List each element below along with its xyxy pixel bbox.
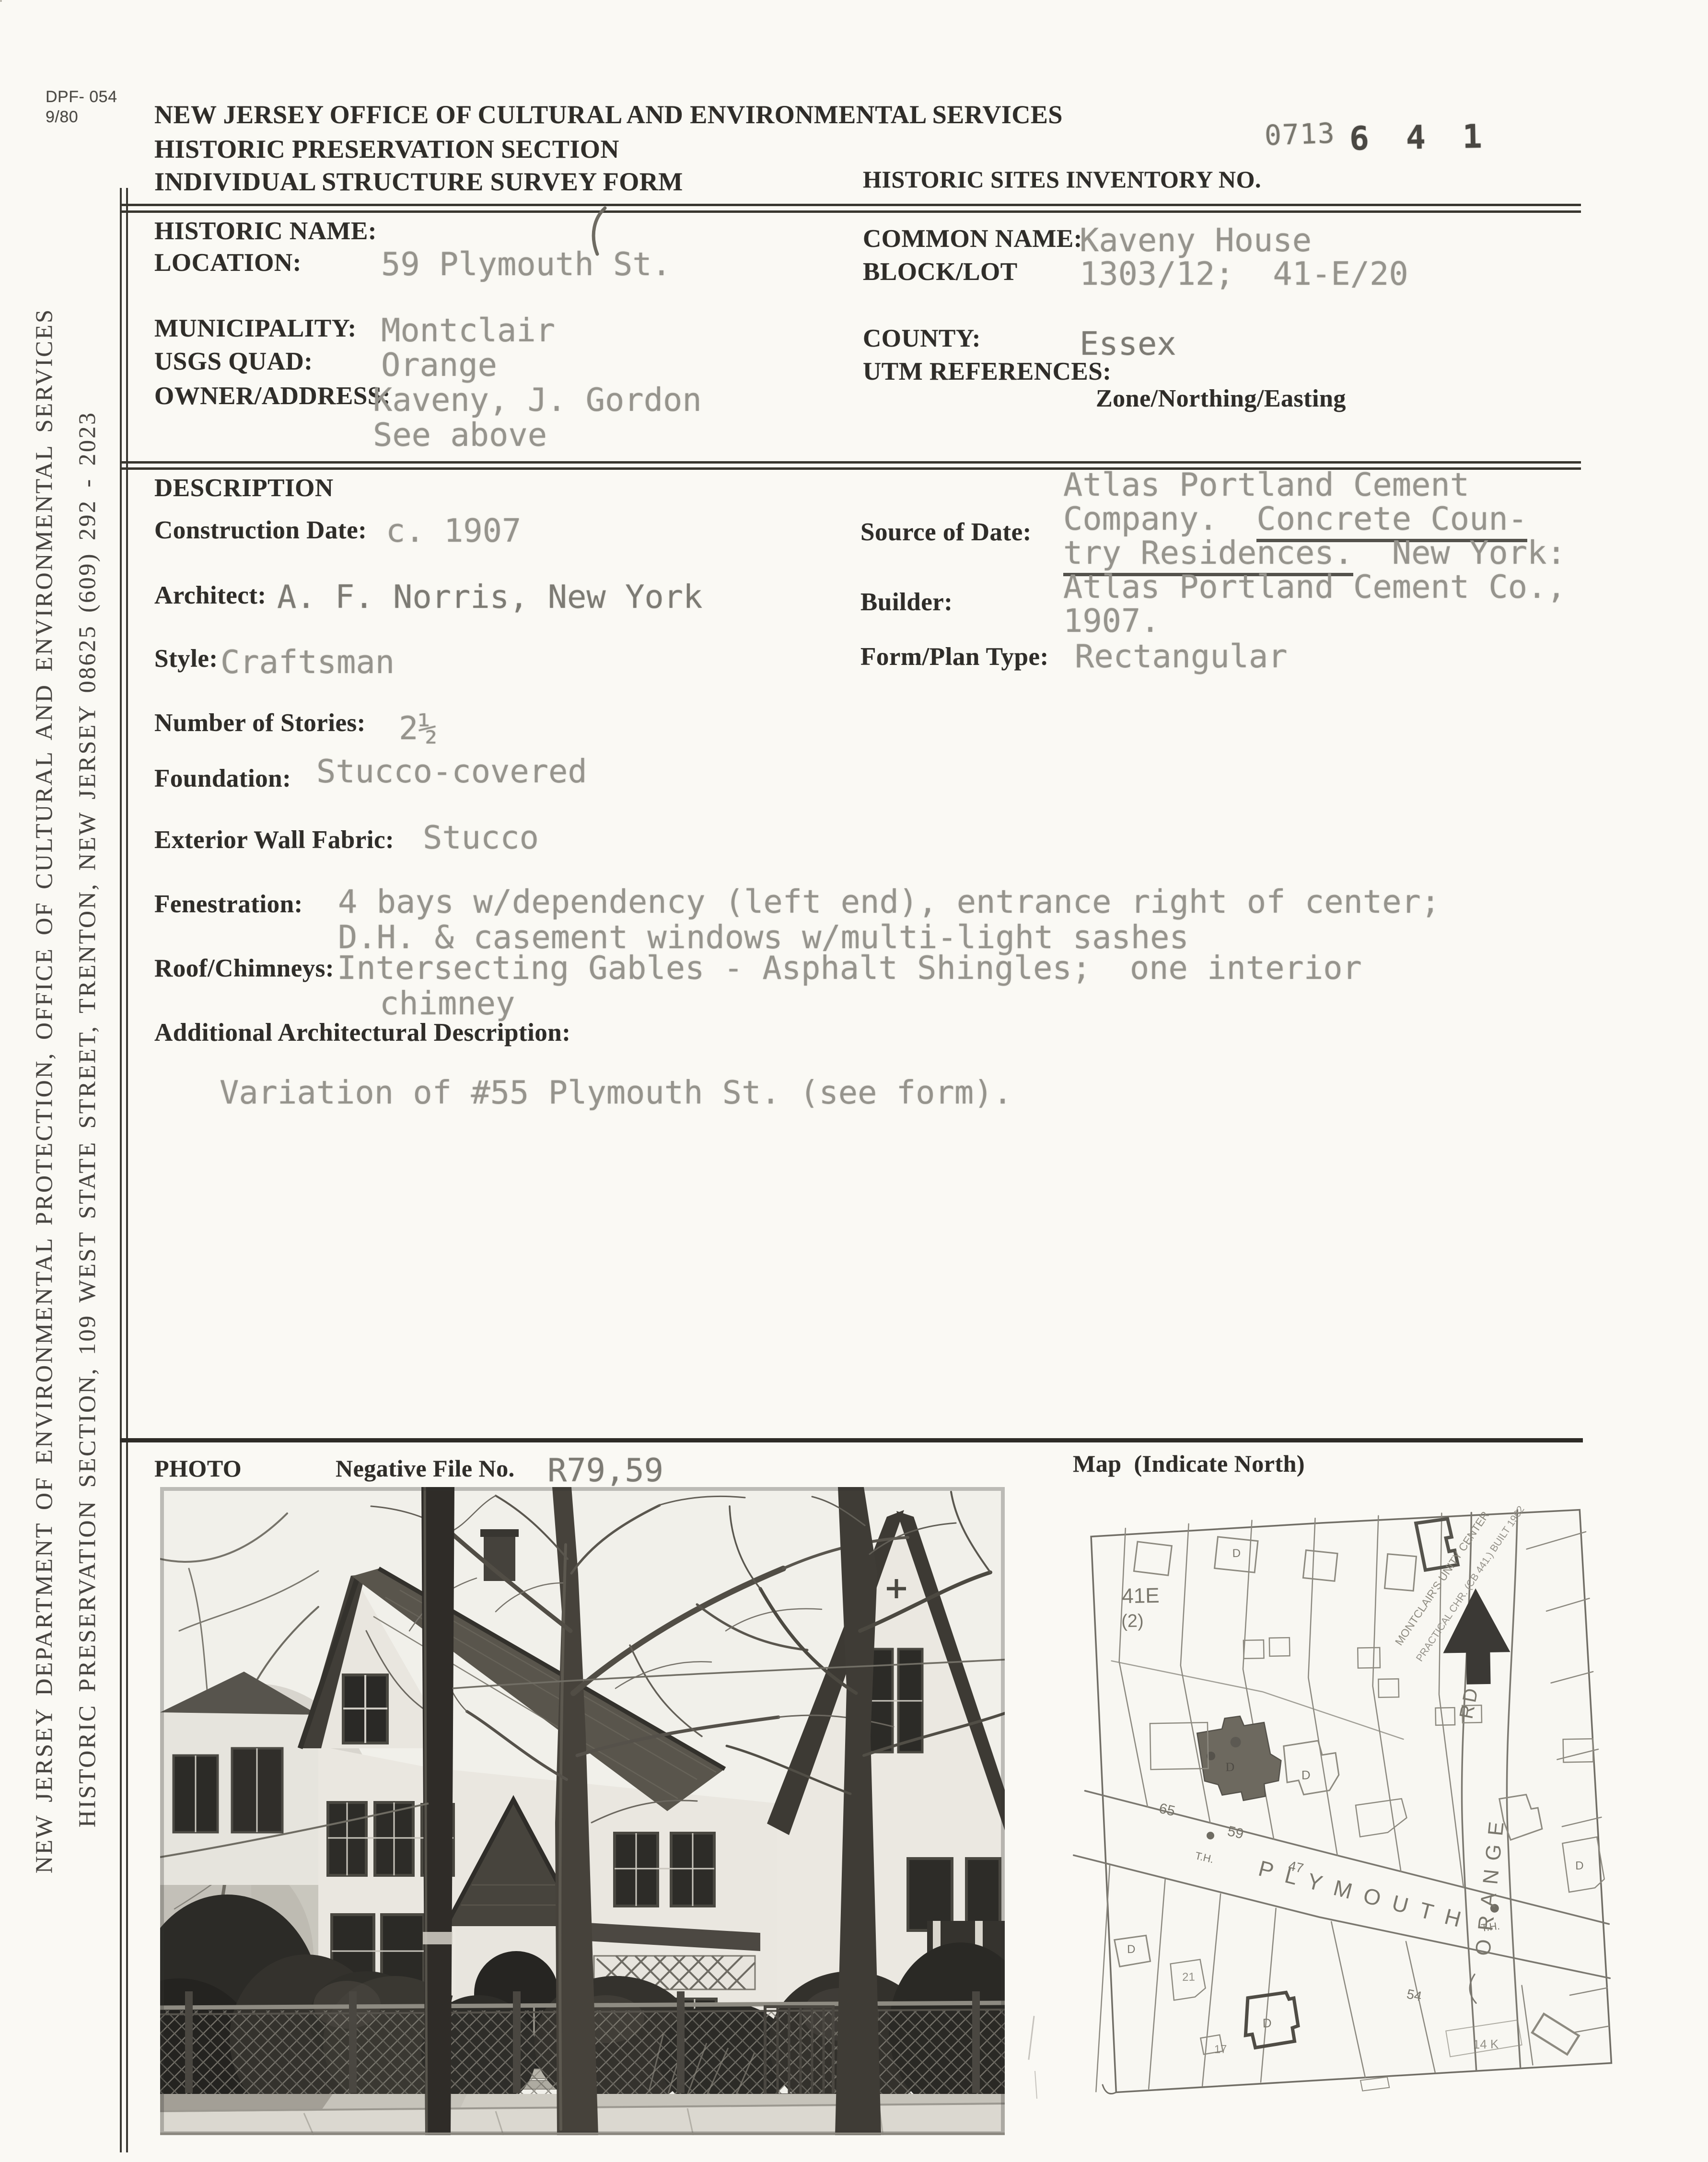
pole-tag xyxy=(423,1932,453,1944)
additional-description-label: Additional Architectural Description: xyxy=(154,1018,570,1047)
common-name-value: Kaveny House xyxy=(1080,221,1312,259)
agency-section: HISTORIC PRESERVATION SECTION xyxy=(154,134,619,164)
pen-mark xyxy=(575,205,618,258)
owner-value-line1: Kaveny, J. Gordon xyxy=(373,381,702,418)
map-block-number: 41E xyxy=(1122,1584,1160,1608)
additional-description-value: Variation of #55 Plymouth St. (see form)… xyxy=(220,1074,1012,1111)
architect-label: Architect: xyxy=(154,581,267,610)
sidebar-address-line: HISTORIC PRESERVATION SECTION, 109 WEST … xyxy=(73,411,101,1827)
location-map: D xyxy=(1068,1495,1631,2149)
county-label: COUNTY: xyxy=(863,324,981,353)
form-plan-label: Form/Plan Type: xyxy=(860,642,1049,671)
inventory-stamp-number: 6 4 1 xyxy=(1349,117,1491,158)
form-title: INDIVIDUAL STRUCTURE SURVEY FORM xyxy=(154,167,683,197)
map-hydrant-label-east: T.H. xyxy=(1480,1920,1500,1934)
source-line2-plain: Company. xyxy=(1063,500,1256,537)
map-dwelling-code-3: D xyxy=(1127,1943,1136,1956)
map-border xyxy=(1091,1510,1612,2092)
form-date: 9/80 xyxy=(46,107,78,127)
location-label: LOCATION: xyxy=(154,248,302,277)
photo-label: PHOTO xyxy=(154,1454,242,1482)
map-subject-dwelling-code: D xyxy=(1225,1760,1234,1774)
architect-value: A. F. Norris, New York xyxy=(277,578,702,616)
source-line4: Atlas Portland Cement Co., xyxy=(1063,568,1566,605)
usgs-quad-label: USGS QUAD: xyxy=(154,347,313,376)
source-line3: try Residences. New York: xyxy=(1063,534,1566,571)
common-name-label: COMMON NAME: xyxy=(863,224,1082,253)
location-value: 59 Plymouth St. xyxy=(381,245,671,283)
map-lot-17: 17 xyxy=(1214,2043,1227,2056)
block-lot-value: 1303/12; 41-E/20 xyxy=(1080,255,1408,292)
sidebar-agency-line: NEW JERSEY DEPARTMENT OF ENVIRONMENTAL P… xyxy=(30,308,58,1873)
style-value: Craftsman xyxy=(221,643,395,681)
left-divider-inner xyxy=(126,188,128,2152)
fenestration-label: Fenestration: xyxy=(154,890,303,918)
wall-fabric-label: Exterior Wall Fabric: xyxy=(154,825,394,854)
roof-chimneys-label: Roof/Chimneys: xyxy=(154,954,334,983)
foundation-label: Foundation: xyxy=(154,764,291,793)
left-divider-outer xyxy=(120,188,122,2152)
foundation-value: Stucco-covered xyxy=(316,753,587,790)
block-lot-label: BLOCK/LOT xyxy=(863,257,1018,286)
construction-date-value: c. 1907 xyxy=(386,512,521,549)
historic-name-label: HISTORIC NAME: xyxy=(154,217,377,245)
stories-label: Number of Stories: xyxy=(154,709,366,737)
builder-label: Builder: xyxy=(860,588,953,616)
pencil-mark-2 xyxy=(1034,2071,1037,2099)
roof-line1: Intersecting Gables - Asphalt Shingles; … xyxy=(337,949,1362,987)
map-dwelling-code-2: D xyxy=(1232,1547,1241,1560)
form-plan-value: Rectangular xyxy=(1075,638,1288,675)
description-title: DESCRIPTION xyxy=(154,474,334,502)
map-dwelling-code-5: D xyxy=(1575,1859,1584,1872)
owner-label: OWNER/ADDRESS: xyxy=(154,382,391,410)
source-of-date-label: Source of Date: xyxy=(860,518,1032,546)
roof-line2: chimney xyxy=(380,985,515,1022)
wall-fabric-value: Stucco xyxy=(423,819,539,856)
map-dwelling-code-1: D xyxy=(1301,1767,1311,1782)
map-lot-14k: 14 K xyxy=(1473,2037,1499,2052)
negative-file-value: R79,59 xyxy=(547,1452,663,1489)
scan-specks xyxy=(0,0,2,2)
map-lot-number-54: 54 xyxy=(1406,1987,1423,2004)
header-rule-bottom xyxy=(120,210,1581,213)
utm-sub-label: Zone/Northing/Easting xyxy=(1096,384,1346,413)
owner-value-line2: See above xyxy=(373,416,547,453)
map-dwelling-code-4: D xyxy=(1263,2016,1272,2030)
map-label: Map (Indicate North) xyxy=(1073,1450,1305,1477)
utm-label: UTM REFERENCES: xyxy=(863,357,1111,386)
source-line5: 1907. xyxy=(1063,602,1160,639)
inventory-stamp-prefix: 0713 xyxy=(1264,116,1336,151)
municipality-label: MUNICIPALITY: xyxy=(154,314,357,343)
usgs-quad-value: Orange xyxy=(381,346,497,384)
map-lot-21: 21 xyxy=(1182,1971,1195,1984)
source-line2: Company. Concrete Coun- xyxy=(1063,500,1527,537)
inventory-number-label: HISTORIC SITES INVENTORY NO. xyxy=(863,165,1261,193)
attic-window xyxy=(343,1675,387,1743)
map-block-sub: (2) xyxy=(1121,1611,1144,1631)
pencil-mark-1 xyxy=(1028,2016,1034,2060)
negative-file-label: Negative File No. xyxy=(336,1454,515,1482)
construction-date-label: Construction Date: xyxy=(154,516,367,545)
source-line1: Atlas Portland Cement xyxy=(1063,466,1469,503)
section-rule-top xyxy=(120,461,1581,464)
fenestration-line1: 4 bays w/dependency (left end), entrance… xyxy=(338,883,1440,920)
form-number: DPF- 054 xyxy=(46,87,117,106)
stories-value: 2½ xyxy=(399,709,438,747)
style-label: Style: xyxy=(154,644,218,673)
photo-section-rule xyxy=(120,1438,1583,1442)
source-line3-plain: New York: xyxy=(1353,534,1566,571)
header-rule-top xyxy=(120,204,1581,206)
municipality-value: Montclair xyxy=(381,312,555,349)
survey-form-page: NEW JERSEY DEPARTMENT OF ENVIRONMENTAL P… xyxy=(0,0,1708,2162)
agency-title: NEW JERSEY OFFICE OF CULTURAL AND ENVIRO… xyxy=(154,100,1063,129)
house-photo xyxy=(160,1487,1005,2135)
